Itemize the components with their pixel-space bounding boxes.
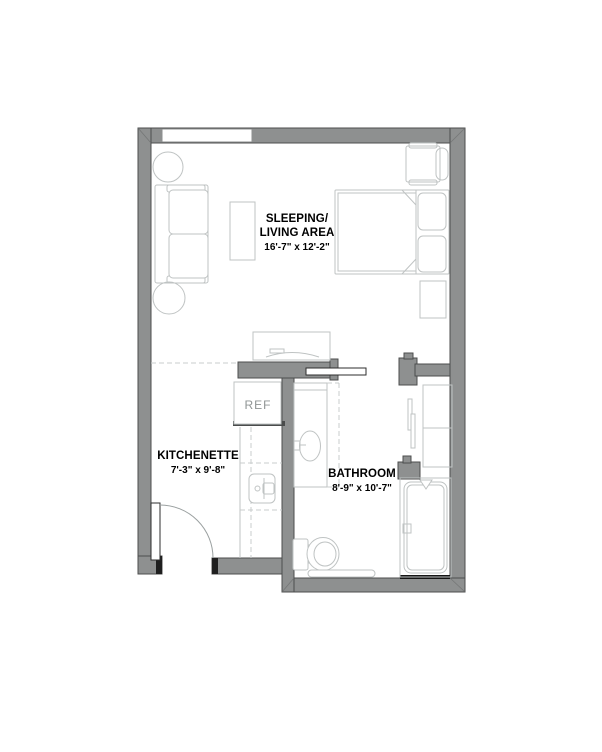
wall-bathroom-left xyxy=(282,362,294,592)
armchair xyxy=(406,143,448,185)
floor-plan-canvas: REF SLEEPING/ LIVING AREA 16'-7" x 12'- xyxy=(0,0,602,752)
door-jamb-right xyxy=(212,558,218,574)
side-table-round-lower xyxy=(153,282,185,314)
wall-stub-closet xyxy=(399,358,417,385)
toilet xyxy=(293,538,339,571)
side-table-round-upper xyxy=(153,152,183,182)
bathroom-dimensions: 8'-9" x 10'-7" xyxy=(332,483,392,494)
bed-sheet xyxy=(338,193,416,271)
entry-door xyxy=(151,503,213,560)
bed xyxy=(335,190,449,274)
sleeping-living-label-line1: SLEEPING/ xyxy=(266,213,329,225)
wall-bottom-bathroom xyxy=(282,578,465,592)
tv-icon xyxy=(270,349,284,353)
tv-console xyxy=(253,332,330,360)
pillow-bottom xyxy=(418,236,446,272)
refrigerator: REF xyxy=(234,382,281,424)
kitchenette-label: KITCHENETTE xyxy=(157,450,239,462)
pocket-door-leaf xyxy=(306,368,366,375)
vanity-sink xyxy=(300,431,321,461)
wall-left xyxy=(138,128,151,574)
entry-door-swing-arc xyxy=(160,505,213,558)
wall-stub-closet-notch xyxy=(404,353,413,359)
grab-bar xyxy=(308,570,375,577)
wall-stub-shower-notch xyxy=(403,456,411,463)
nightstand xyxy=(420,281,446,318)
sleeping-living-dimensions: 16'-7" x 12'-2" xyxy=(264,242,330,253)
shower xyxy=(400,478,451,577)
window xyxy=(162,129,252,142)
wall-bathroom-top xyxy=(415,364,450,376)
blanket-fold-top xyxy=(402,190,416,205)
wall-stub-shower xyxy=(398,462,420,479)
bathroom-label: BATHROOM xyxy=(328,468,396,480)
sofa xyxy=(155,185,208,283)
refrigerator-label: REF xyxy=(245,398,272,412)
pillow-top xyxy=(418,193,446,230)
coffee-table xyxy=(230,202,255,260)
cooktop-sink xyxy=(249,474,275,503)
sleeping-living-label-line2: LIVING AREA xyxy=(260,227,335,239)
closet-sliding-door-panel xyxy=(411,414,415,448)
kitchenette-dimensions: 7'-3" x 9'-8" xyxy=(171,465,226,476)
entry-door-leaf xyxy=(151,503,160,560)
toilet-tank xyxy=(293,539,308,570)
floor-plan-drawing: REF SLEEPING/ LIVING AREA 16'-7" x 12'- xyxy=(0,0,602,752)
blanket-fold-bottom xyxy=(402,259,416,274)
closet-shelving xyxy=(408,385,452,467)
wall-right xyxy=(450,128,465,592)
